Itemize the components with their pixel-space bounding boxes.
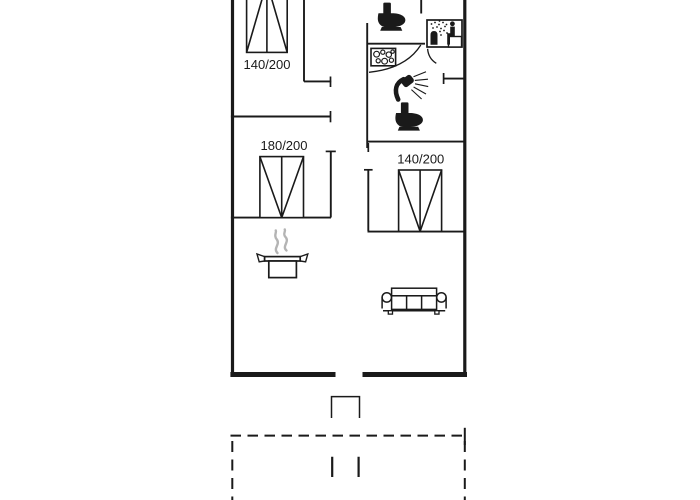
- shower-icon: [396, 72, 428, 100]
- cooking-pot-icon: [257, 230, 308, 278]
- washbasin-icon: [371, 48, 396, 65]
- steam-icon: [275, 230, 287, 254]
- terrace-dashed-outline: [231, 428, 467, 500]
- bed-mid-right: [399, 170, 442, 231]
- bed-mid-left: [260, 157, 304, 218]
- entrance-steps: [332, 397, 360, 477]
- sauna-icon: [427, 20, 462, 47]
- floorplan-image: 140/200 180/200 140/200: [0, 0, 700, 500]
- sofa-icon: [382, 288, 446, 314]
- bed-top-left: [247, 0, 288, 52]
- bed-top-left-size-label: 140/200: [244, 57, 291, 72]
- bed-mid-right-size-label: 140/200: [397, 152, 444, 167]
- toilet-icon-top: [378, 3, 406, 31]
- bed-mid-left-size-label: 180/200: [261, 138, 308, 153]
- toilet-icon-bathroom: [395, 102, 423, 130]
